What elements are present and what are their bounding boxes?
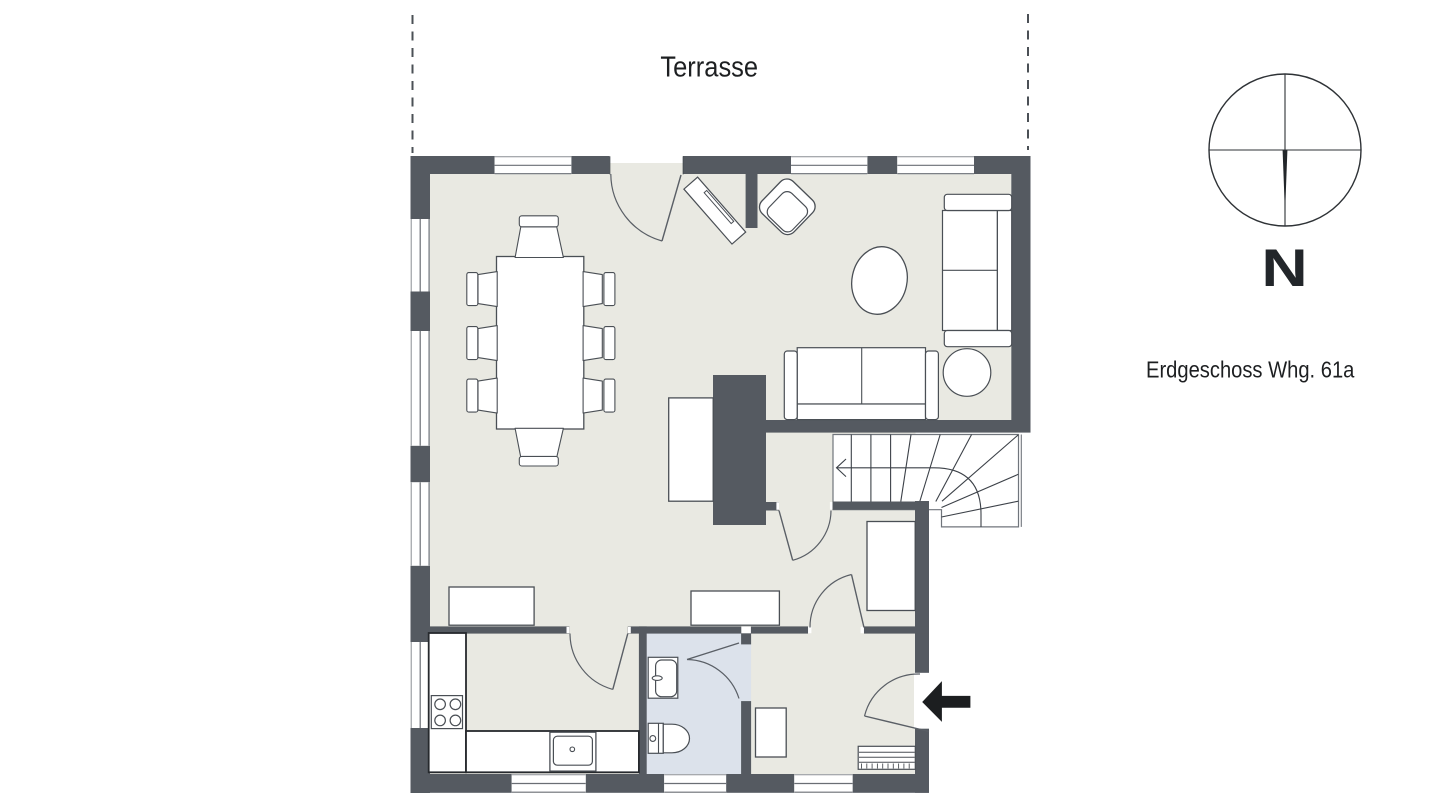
svg-text:Terrasse: Terrasse [660,51,758,83]
svg-text:Erdgeschoss Whg. 61a: Erdgeschoss Whg. 61a [1146,357,1355,383]
svg-text:N: N [1261,239,1307,298]
